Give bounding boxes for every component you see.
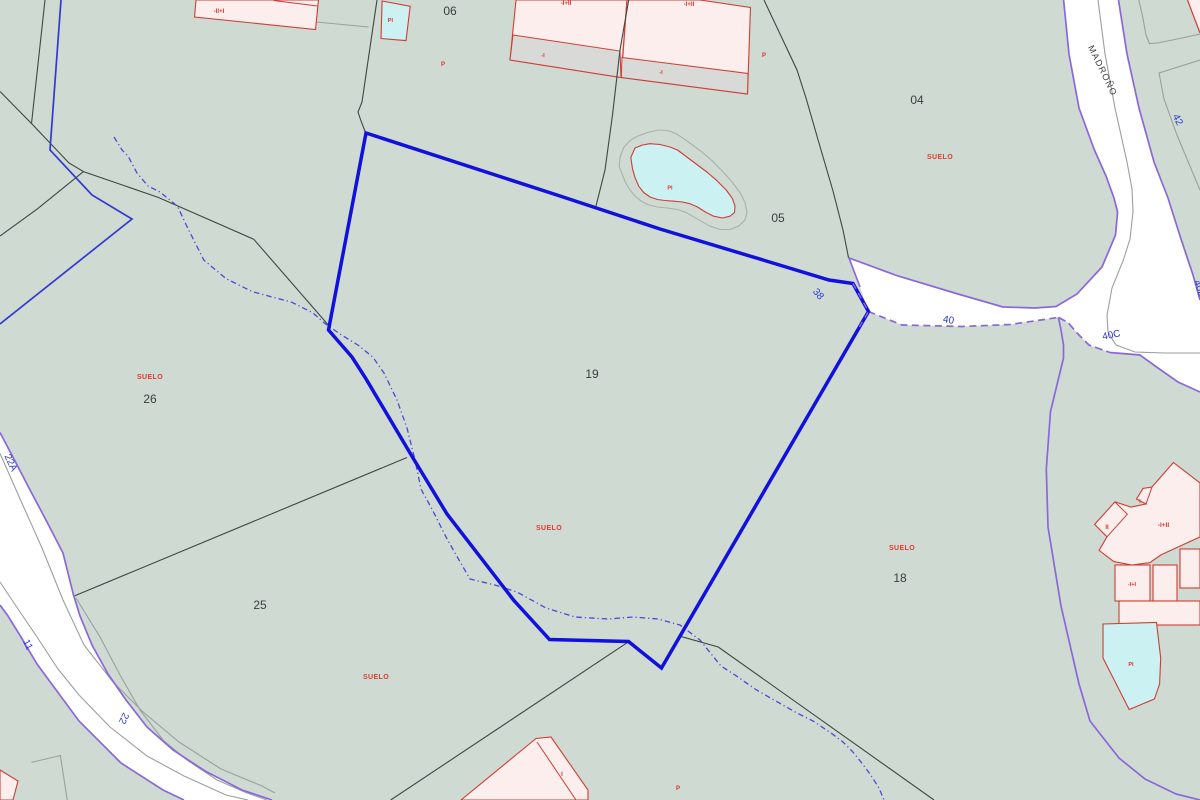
svg-text:SUELO: SUELO bbox=[536, 525, 562, 532]
svg-text:-I+I: -I+I bbox=[1128, 582, 1137, 588]
svg-text:-I+II: -I+II bbox=[1158, 522, 1170, 529]
svg-text:19: 19 bbox=[585, 367, 599, 381]
svg-text:P: P bbox=[676, 786, 680, 792]
svg-text:II: II bbox=[1105, 525, 1109, 531]
svg-text:-I: -I bbox=[659, 70, 663, 76]
svg-text:25: 25 bbox=[253, 598, 267, 612]
svg-text:SUELO: SUELO bbox=[363, 674, 389, 681]
svg-text:SUELO: SUELO bbox=[889, 545, 915, 552]
svg-text:26: 26 bbox=[143, 392, 157, 406]
svg-text:P: P bbox=[762, 53, 766, 59]
svg-text:06: 06 bbox=[443, 4, 457, 18]
svg-text:-I+II: -I+II bbox=[684, 2, 695, 8]
svg-text:P: P bbox=[441, 62, 445, 68]
svg-text:18: 18 bbox=[893, 571, 907, 585]
svg-text:PI: PI bbox=[388, 18, 394, 24]
svg-text:05: 05 bbox=[771, 211, 785, 225]
svg-text:-II+I: -II+I bbox=[214, 9, 225, 15]
svg-text:PI: PI bbox=[1128, 662, 1134, 668]
svg-text:-I: -I bbox=[541, 53, 545, 59]
svg-text:SUELO: SUELO bbox=[927, 154, 953, 161]
svg-text:SUELO: SUELO bbox=[137, 374, 163, 381]
svg-text:-I+II: -I+II bbox=[561, 1, 572, 7]
svg-text:PI: PI bbox=[667, 186, 673, 192]
svg-text:04: 04 bbox=[910, 93, 924, 107]
